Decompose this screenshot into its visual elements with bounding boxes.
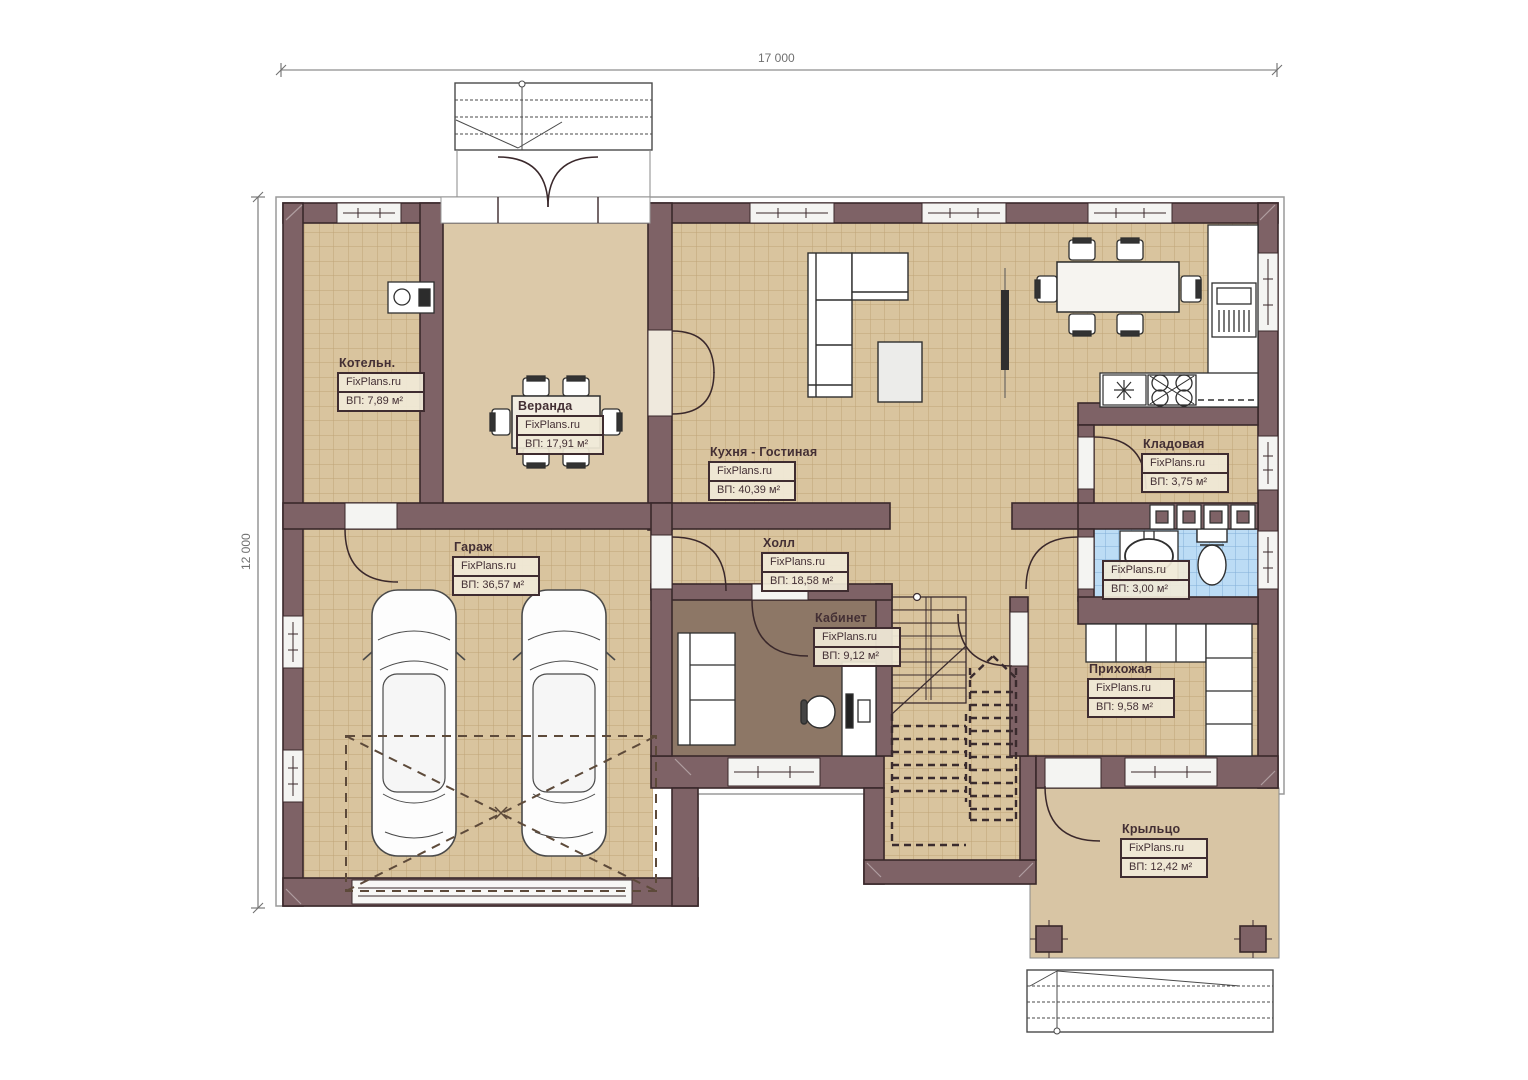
floor-plan: 17 000 12 000 Котельн. FixPlans.ru ВП: 7… <box>0 0 1528 1080</box>
room-info-box: FixPlans.ru ВП: 17,91 м² <box>516 415 604 455</box>
room-label-garage: Гараж FixPlans.ru ВП: 36,57 м² <box>452 540 540 596</box>
wall-stairbay-bottom <box>864 860 1036 884</box>
watermark: FixPlans.ru <box>339 374 423 391</box>
window-garage-left-1 <box>283 616 303 668</box>
opening-hallway <box>1010 612 1028 666</box>
room-name: Веранда <box>518 399 604 413</box>
dimension-width-label: 17 000 <box>758 51 795 65</box>
room-name: Гараж <box>454 540 540 554</box>
opening-pantry <box>1078 437 1094 489</box>
coffee-table <box>878 342 922 402</box>
room-info-box: FixPlans.ru ВП: 9,58 м² <box>1087 678 1175 718</box>
room-info-box: FixPlans.ru ВП: 36,57 м² <box>452 556 540 596</box>
room-area: ВП: 17,91 м² <box>518 434 602 453</box>
room-area: ВП: 36,57 м² <box>454 575 538 594</box>
opening-boiler-garage <box>345 503 397 529</box>
window-kitchen-right <box>1258 253 1278 331</box>
wall-notch-left <box>672 788 698 906</box>
study-desk <box>842 662 876 756</box>
watermark: FixPlans.ru <box>1122 840 1206 857</box>
room-area: ВП: 18,58 м² <box>763 571 847 590</box>
kitchen-sink <box>1103 375 1146 405</box>
room-label-pantry: Кладовая FixPlans.ru ВП: 3,75 м² <box>1141 437 1229 493</box>
room-label-hallway: Прихожая FixPlans.ru ВП: 9,58 м² <box>1087 662 1175 718</box>
room-name: Холл <box>763 536 849 550</box>
opening-garage-hall <box>651 535 672 589</box>
watermark: FixPlans.ru <box>1104 562 1188 579</box>
toilet <box>1197 529 1227 585</box>
stove <box>1148 375 1196 406</box>
room-label-veranda: Веранда FixPlans.ru ВП: 17,91 м² <box>516 399 604 455</box>
room-area: ВП: 12,42 м² <box>1122 857 1206 876</box>
porch-roof-overhang <box>1027 970 1273 1034</box>
room-label-porch: Крыльцо FixPlans.ru ВП: 12,42 м² <box>1120 822 1208 878</box>
fridge <box>1212 283 1256 337</box>
room-name: Котельн. <box>339 356 425 370</box>
veranda-entry-band <box>441 197 650 223</box>
room-info-box: FixPlans.ru ВП: 3,75 м² <box>1141 453 1229 493</box>
opening-bathroom <box>1078 537 1094 589</box>
wall-kitchen-hall-a <box>666 503 890 529</box>
window-kitchen-top-1 <box>750 203 834 223</box>
wall-bath-bottom <box>1078 597 1258 624</box>
watermark: FixPlans.ru <box>1143 455 1227 472</box>
room-area: ВП: 3,00 м² <box>1104 579 1188 598</box>
room-area: ВП: 9,12 м² <box>815 646 899 665</box>
wall-stairbay-right <box>1020 756 1036 860</box>
room-name: Крыльцо <box>1122 822 1208 836</box>
watermark: FixPlans.ru <box>763 554 847 571</box>
window-study-bottom <box>728 758 820 786</box>
room-label-kitchen-living: Кухня - Гостиная FixPlans.ru ВП: 40,39 м… <box>708 445 817 501</box>
car-1 <box>363 590 465 856</box>
window-pantry-right <box>1258 436 1278 490</box>
room-label-bathroom: FixPlans.ru ВП: 3,00 м² <box>1102 560 1190 600</box>
room-info-box: FixPlans.ru ВП: 18,58 м² <box>761 552 849 592</box>
room-name: Кухня - Гостиная <box>710 445 817 459</box>
window-boiler-top <box>337 203 401 223</box>
window-hallway-bottom <box>1125 758 1217 786</box>
room-area: ВП: 3,75 м² <box>1143 472 1227 491</box>
window-bath-right <box>1258 531 1278 589</box>
window-kitchen-top-2 <box>922 203 1006 223</box>
room-label-study: Кабинет FixPlans.ru ВП: 9,12 м² <box>813 611 901 667</box>
opening-veranda-kitchen <box>648 330 672 416</box>
room-label-hall: Холл FixPlans.ru ВП: 18,58 м² <box>761 536 849 592</box>
watermark: FixPlans.ru <box>1089 680 1173 697</box>
room-name: Кладовая <box>1143 437 1229 451</box>
room-name: Прихожая <box>1089 662 1175 676</box>
wall-mid-left <box>283 503 672 529</box>
room-info-box: FixPlans.ru ВП: 7,89 м² <box>337 372 425 412</box>
boiler-unit <box>388 282 434 313</box>
office-chair <box>801 696 835 728</box>
watermark: FixPlans.ru <box>454 558 538 575</box>
opening-porch-entry <box>1045 758 1101 788</box>
car-2 <box>513 590 615 856</box>
window-kitchen-top-3 <box>1088 203 1172 223</box>
room-area: ВП: 40,39 м² <box>710 480 794 499</box>
room-label-kotelnaya: Котельн. FixPlans.ru ВП: 7,89 м² <box>337 356 425 412</box>
veranda-roof-overhang <box>455 81 652 203</box>
room-name: Кабинет <box>815 611 901 625</box>
room-area: ВП: 7,89 м² <box>339 391 423 410</box>
room-info-box: FixPlans.ru ВП: 3,00 м² <box>1102 560 1190 600</box>
dimension-height-label: 12 000 <box>239 533 253 570</box>
room-info-box: FixPlans.ru ВП: 9,12 м² <box>813 627 901 667</box>
study-bed <box>678 633 735 745</box>
window-garage-left-2 <box>283 750 303 802</box>
watermark: FixPlans.ru <box>518 417 602 434</box>
wall-study-right <box>876 584 892 756</box>
room-info-box: FixPlans.ru ВП: 40,39 м² <box>708 461 796 501</box>
watermark: FixPlans.ru <box>710 463 794 480</box>
watermark: FixPlans.ru <box>815 629 899 646</box>
room-info-box: FixPlans.ru ВП: 12,42 м² <box>1120 838 1208 878</box>
room-area: ВП: 9,58 м² <box>1089 697 1173 716</box>
